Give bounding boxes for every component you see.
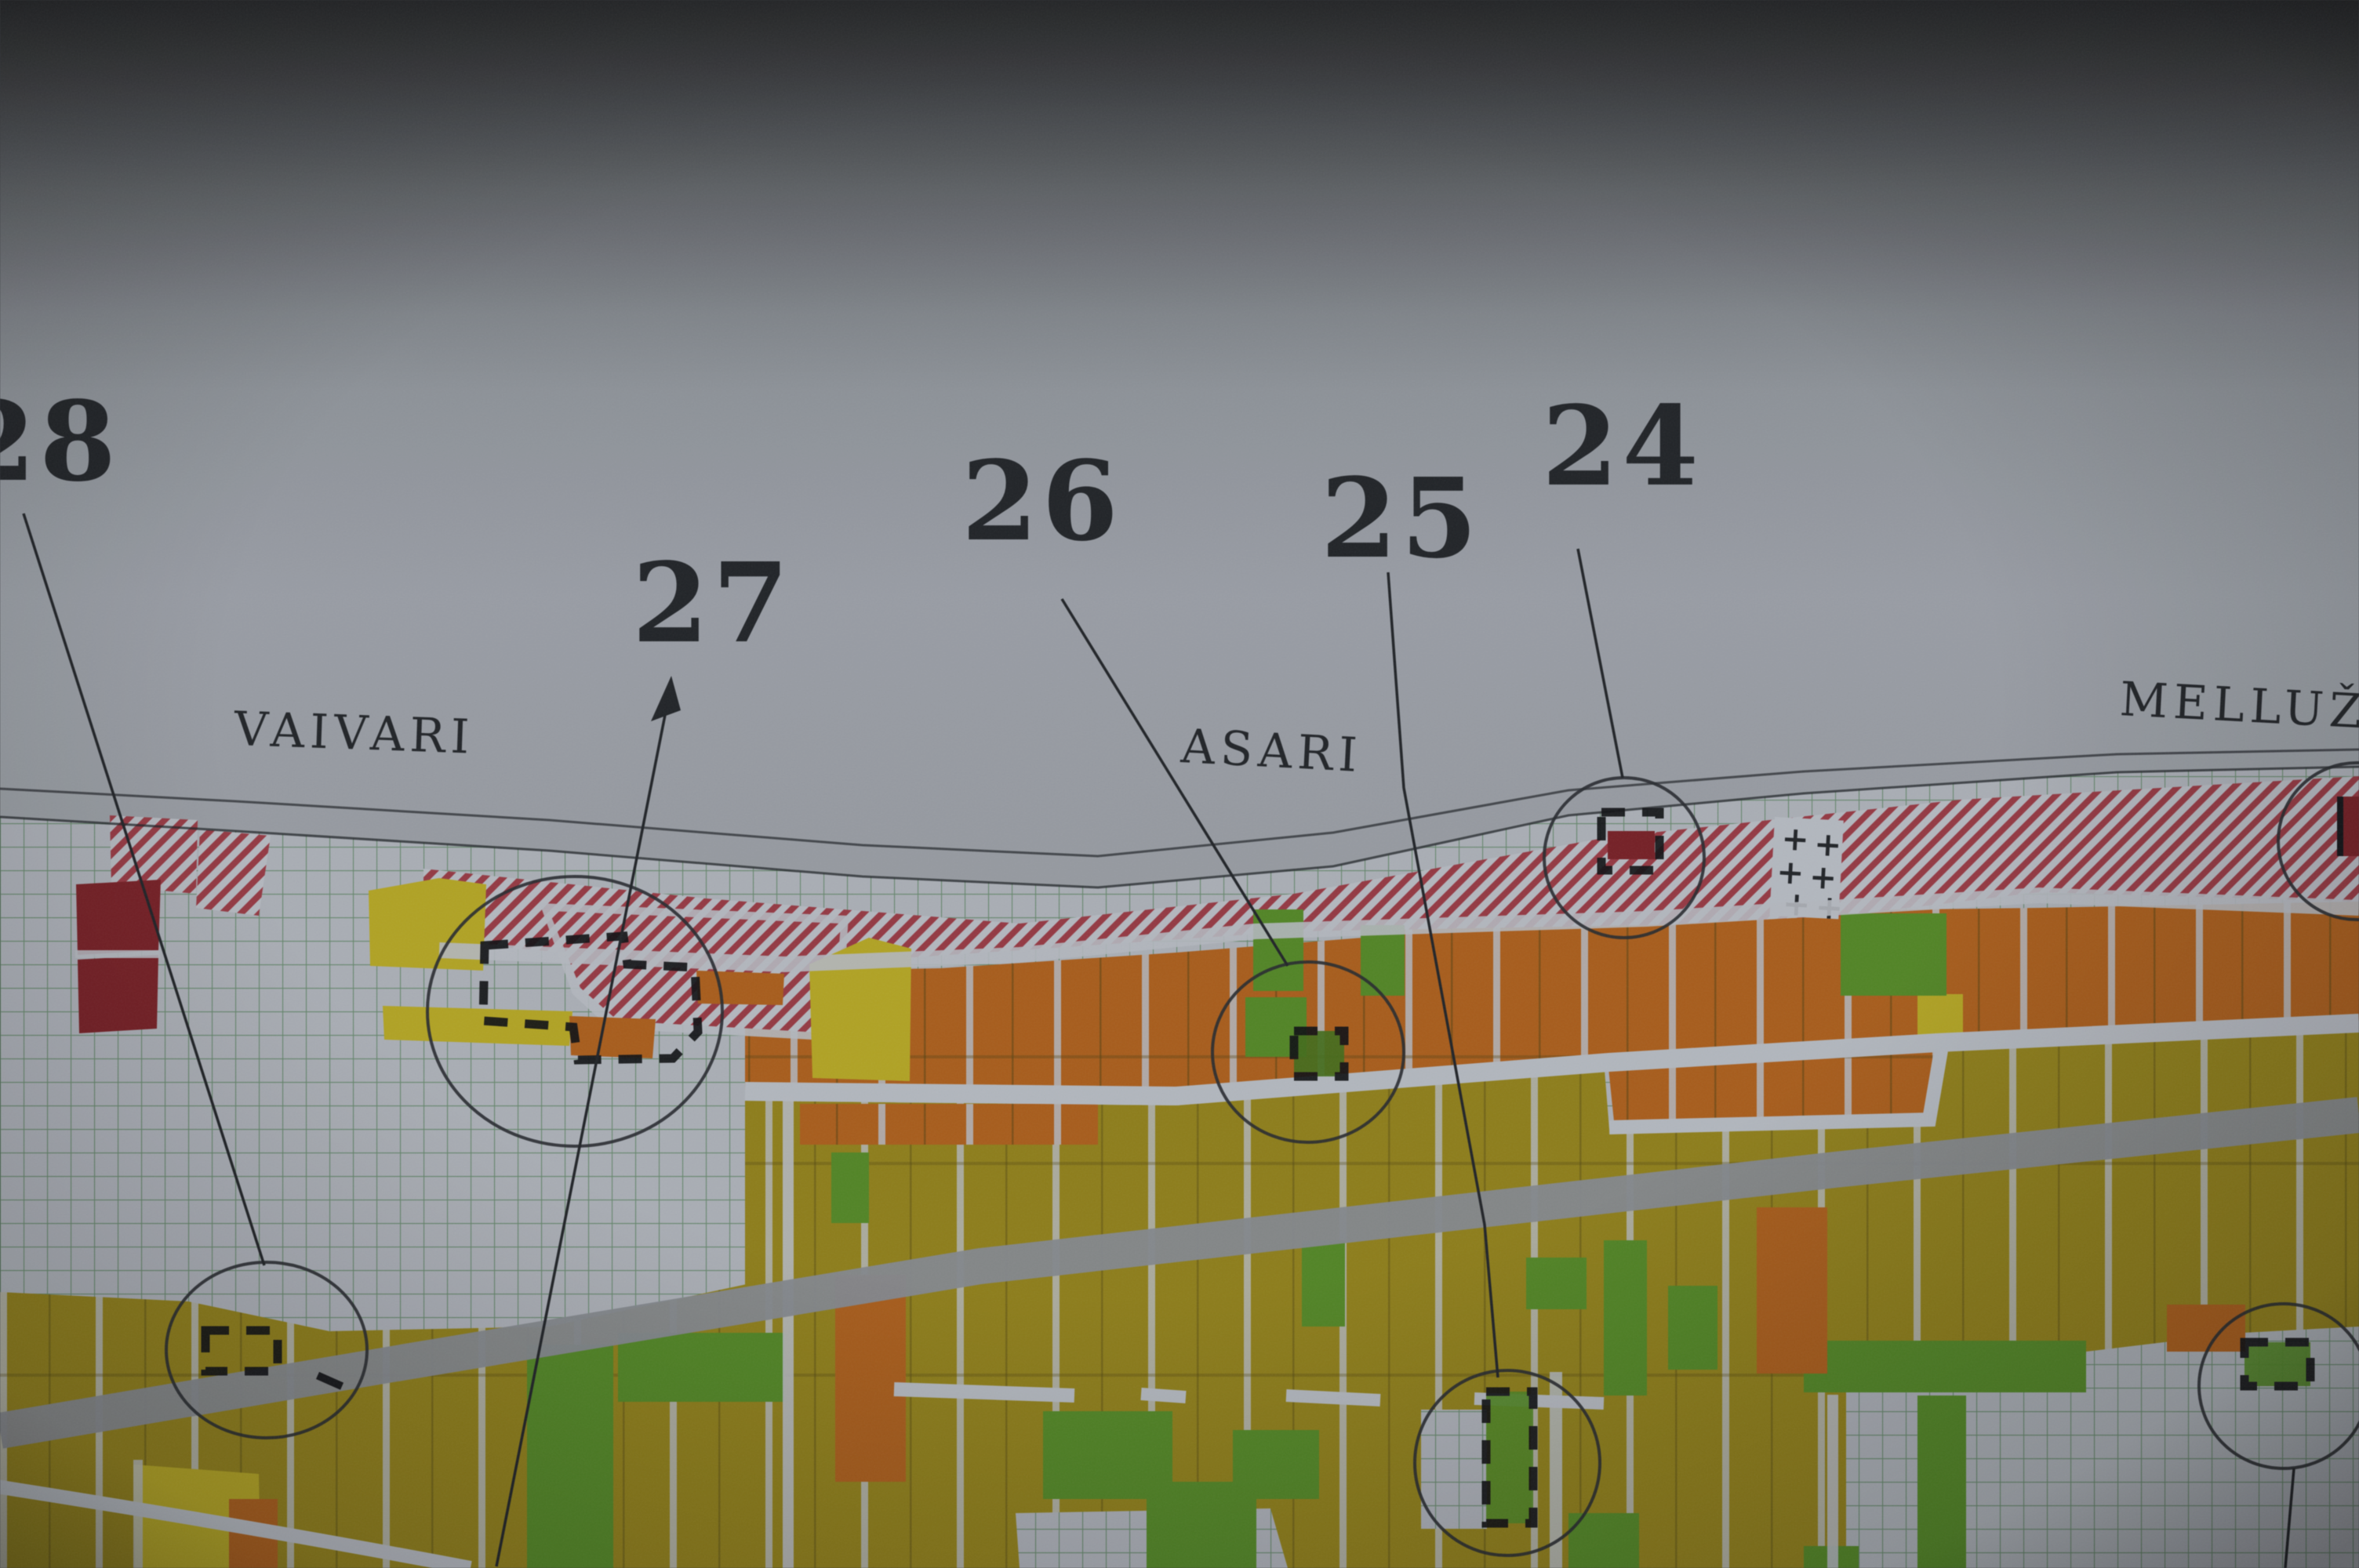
map-photo: + + + + + +: [0, 0, 2359, 1568]
zoning-map-canvas: + + + + + +: [0, 0, 2359, 1568]
film-grain-overlay: [0, 0, 2359, 1568]
